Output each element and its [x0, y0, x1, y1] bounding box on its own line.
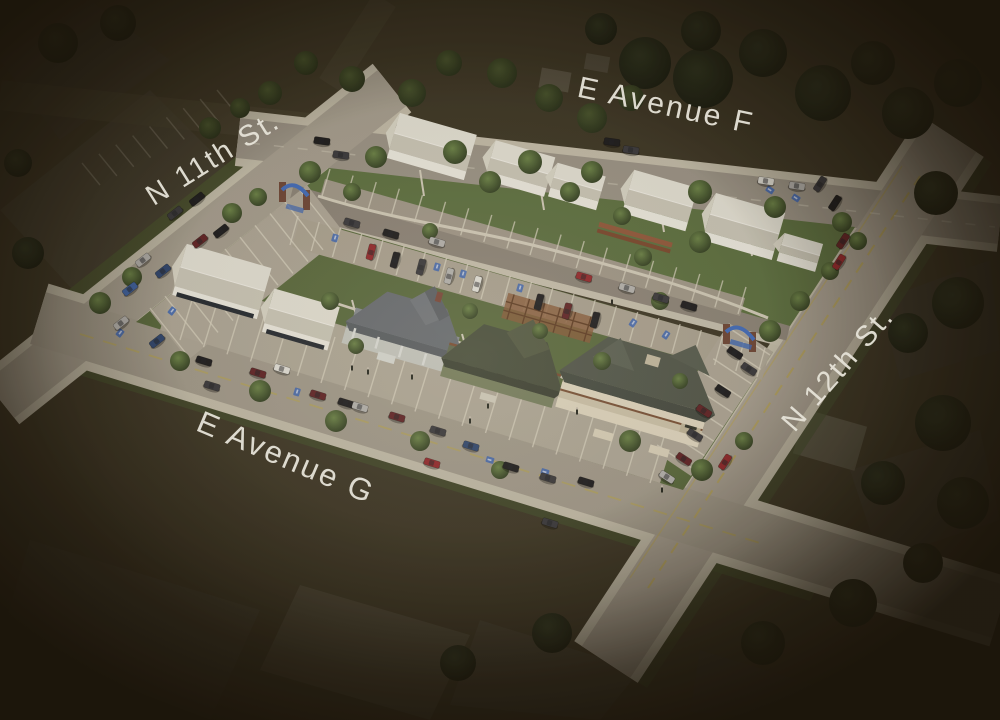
scene-svg: E Avenue F N 11th St. N 12th St. E Avenu…: [0, 0, 1000, 720]
aerial-rendering: E Avenue F N 11th St. N 12th St. E Avenu…: [0, 0, 1000, 720]
